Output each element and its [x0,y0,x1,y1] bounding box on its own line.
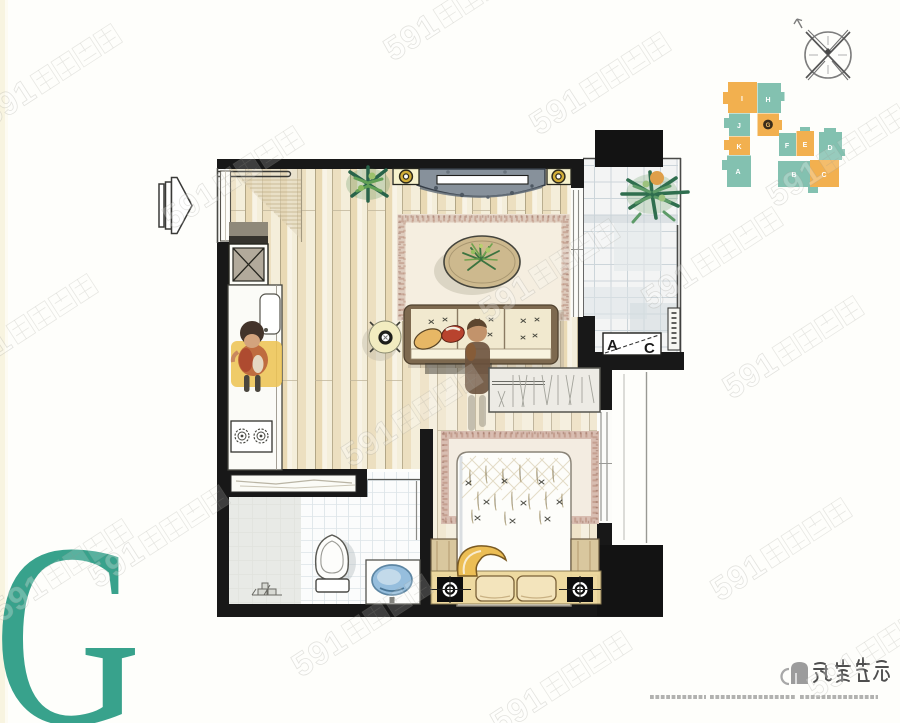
svg-text:E: E [803,142,808,149]
svg-text:G: G [766,122,771,129]
svg-text:J: J [737,123,741,130]
svg-text:H: H [765,97,770,104]
svg-text:A: A [607,337,618,354]
svg-text:I: I [741,96,743,103]
svg-text:K: K [736,144,741,151]
svg-text:C: C [644,340,655,357]
svg-text:F: F [785,143,790,150]
svg-text:A: A [735,169,740,176]
